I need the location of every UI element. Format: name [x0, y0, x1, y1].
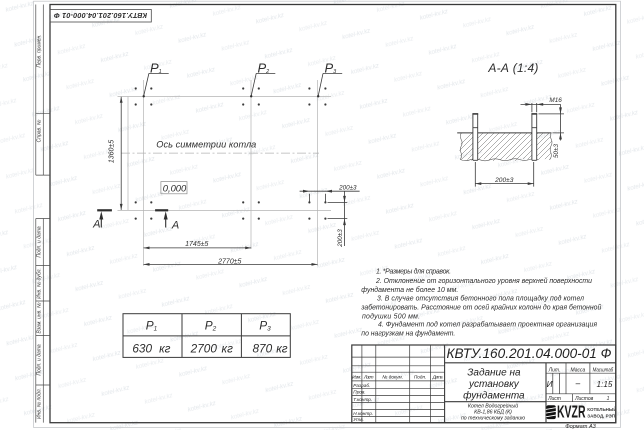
svg-text:М16: М16	[549, 97, 562, 104]
svg-text:200±3: 200±3	[338, 184, 357, 191]
svg-text:Масса: Масса	[571, 367, 586, 373]
svg-text:кг: кг	[276, 342, 288, 356]
svg-text:Перв. примен.: Перв. примен.	[37, 34, 43, 67]
svg-text:50±3: 50±3	[553, 144, 560, 158]
svg-text:200±3: 200±3	[494, 177, 514, 184]
svg-text:Подп.: Подп.	[414, 375, 426, 380]
svg-text:2770±5: 2770±5	[217, 258, 241, 265]
svg-text:Котел Водогрейный: Котел Водогрейный	[468, 403, 518, 410]
svg-text:Изм.: Изм.	[352, 375, 361, 380]
svg-text:3. В случае отсутствия бетонно: 3. В случае отсутствия бетонного пола пл…	[377, 295, 584, 303]
svg-text:кг: кг	[222, 342, 234, 356]
svg-text:1:15: 1:15	[597, 380, 613, 389]
svg-text:А-А (1:4): А-А (1:4)	[487, 61, 538, 75]
svg-text:2. Отклонение от горизонтально: 2. Отклонение от горизонтального уровня …	[375, 277, 592, 285]
svg-text:Разраб.: Разраб.	[353, 383, 370, 388]
svg-text:КВТУ.160.201.04.000-01 Ф: КВТУ.160.201.04.000-01 Ф	[54, 11, 147, 20]
svg-text:ЗАВОД, РЭП: ЗАВОД, РЭП	[587, 414, 615, 419]
svg-text:Дата: Дата	[432, 375, 443, 380]
svg-text:Подп. и дата: Подп. и дата	[37, 226, 43, 258]
svg-text:фундамента: фундамента	[463, 390, 525, 402]
svg-text:КОТЕЛЬНЫЙ: КОТЕЛЬНЫЙ	[587, 405, 616, 412]
svg-text:фундамента не более 10 мм.: фундамента не более 10 мм.	[361, 286, 458, 294]
svg-text:Формат А3: Формат А3	[565, 424, 596, 430]
svg-text:Т.контр.: Т.контр.	[353, 397, 372, 402]
svg-text:–: –	[575, 379, 581, 388]
svg-text:2700: 2700	[190, 342, 218, 356]
svg-text:А: А	[171, 219, 179, 231]
svg-text:Взам. инв. №: Взам. инв. №	[37, 302, 43, 334]
svg-text:Задание на: Задание на	[467, 367, 521, 378]
svg-text:А: А	[92, 219, 100, 231]
svg-text:Подп. и дата: Подп. и дата	[37, 344, 43, 376]
svg-text:1360±5: 1360±5	[109, 140, 116, 163]
svg-text:Справ. №: Справ. №	[37, 119, 43, 142]
svg-text:200±3: 200±3	[337, 229, 344, 248]
svg-text:по техническому заданию: по техническому заданию	[461, 416, 525, 422]
svg-text:1745±5: 1745±5	[185, 241, 208, 248]
svg-text:Пров.: Пров.	[353, 390, 365, 395]
svg-text:1. *Размеры для справок.: 1. *Размеры для справок.	[376, 268, 451, 276]
svg-text:Масштаб: Масштаб	[593, 367, 614, 373]
svg-text:Инв. № подл.: Инв. № подл.	[37, 388, 43, 419]
svg-text:№ докум.: № докум.	[382, 375, 403, 380]
svg-text:подушки 500 мм.: подушки 500 мм.	[362, 313, 420, 321]
svg-text:Лит.: Лит.	[548, 367, 561, 373]
svg-text:4. Фундамент под котел разраба: 4. Фундамент под котел разрабатывает про…	[378, 320, 597, 328]
svg-text:кг: кг	[159, 342, 171, 356]
svg-text:870: 870	[252, 342, 272, 356]
svg-text:Инв. № дубл.: Инв. № дубл.	[37, 268, 43, 299]
svg-text:Утв.: Утв.	[353, 417, 364, 422]
svg-text:1: 1	[607, 396, 610, 402]
svg-text:KVZR: KVZR	[557, 402, 586, 422]
svg-text:Н.контр.: Н.контр.	[353, 411, 373, 416]
svg-text:630: 630	[132, 342, 152, 356]
svg-text:Ось симметрии котла: Ось симметрии котла	[156, 139, 256, 149]
svg-text:забетонировать. Расстояние от: забетонировать. Расстояние от осей крайн…	[360, 304, 601, 312]
svg-text:КВТУ.160.201.04.000-01 Ф: КВТУ.160.201.04.000-01 Ф	[447, 346, 612, 361]
svg-text:Лист: Лист	[363, 375, 374, 380]
svg-text:0,000: 0,000	[163, 183, 187, 194]
svg-text:установку: установку	[468, 379, 520, 390]
svg-text:И: И	[547, 380, 553, 389]
svg-text:по нагрузкам на фундамент.: по нагрузкам на фундамент.	[361, 329, 455, 337]
